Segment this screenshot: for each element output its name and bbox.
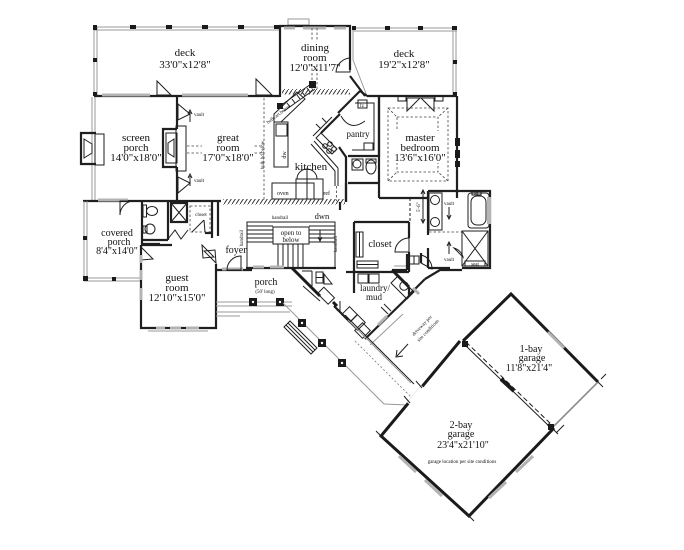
svg-text:19'2"x12'8": 19'2"x12'8" (378, 59, 429, 71)
svg-text:bulk.hd.below: bulk.hd.below (261, 140, 266, 169)
svg-text:oven: oven (277, 191, 289, 197)
svg-text:deck: deck (175, 47, 196, 59)
svg-text:11'8"x21'4": 11'8"x21'4" (506, 363, 552, 374)
svg-text:vault: vault (194, 113, 205, 118)
svg-text:14'0"x18'0": 14'0"x18'0" (110, 152, 161, 164)
svg-text:closet: closet (195, 213, 207, 218)
svg-text:handrail: handrail (240, 229, 245, 246)
svg-text:garage: garage (448, 429, 475, 440)
svg-text:dw: dw (282, 151, 288, 159)
svg-text:17'0"x18'0": 17'0"x18'0" (202, 152, 253, 164)
svg-text:handrail: handrail (272, 216, 289, 221)
svg-text:vault: vault (194, 179, 205, 184)
svg-text:ref: ref (323, 190, 330, 197)
svg-text:porch: porch (255, 277, 278, 288)
svg-text:vault: vault (444, 202, 455, 207)
svg-text:closet: closet (368, 239, 392, 250)
svg-text:33'0"x12'8": 33'0"x12'8" (159, 59, 210, 71)
svg-text:13'6"x16'0": 13'6"x16'0" (394, 152, 445, 164)
svg-text:dwn: dwn (315, 211, 330, 221)
svg-text:below: below (282, 236, 300, 244)
svg-text:kitchen: kitchen (295, 161, 328, 173)
svg-text:seat: seat (471, 263, 479, 268)
svg-text:5'-6": 5'-6" (417, 202, 422, 212)
svg-text:12'10"x15'0": 12'10"x15'0" (149, 292, 206, 304)
svg-text:mud: mud (366, 292, 383, 302)
svg-text:pantry: pantry (347, 129, 370, 139)
svg-text:8'4"x14'0": 8'4"x14'0" (96, 246, 138, 257)
svg-text:(50' long): (50' long) (255, 290, 275, 295)
svg-text:23'4"x21'10": 23'4"x21'10" (437, 440, 489, 451)
svg-text:12'0"x11'7": 12'0"x11'7" (289, 62, 340, 74)
svg-text:handrail: handrail (334, 235, 339, 252)
svg-text:sd: sd (474, 192, 479, 197)
svg-text:vault: vault (444, 258, 455, 263)
svg-text:garage location per site condi: garage location per site conditions (428, 460, 497, 465)
